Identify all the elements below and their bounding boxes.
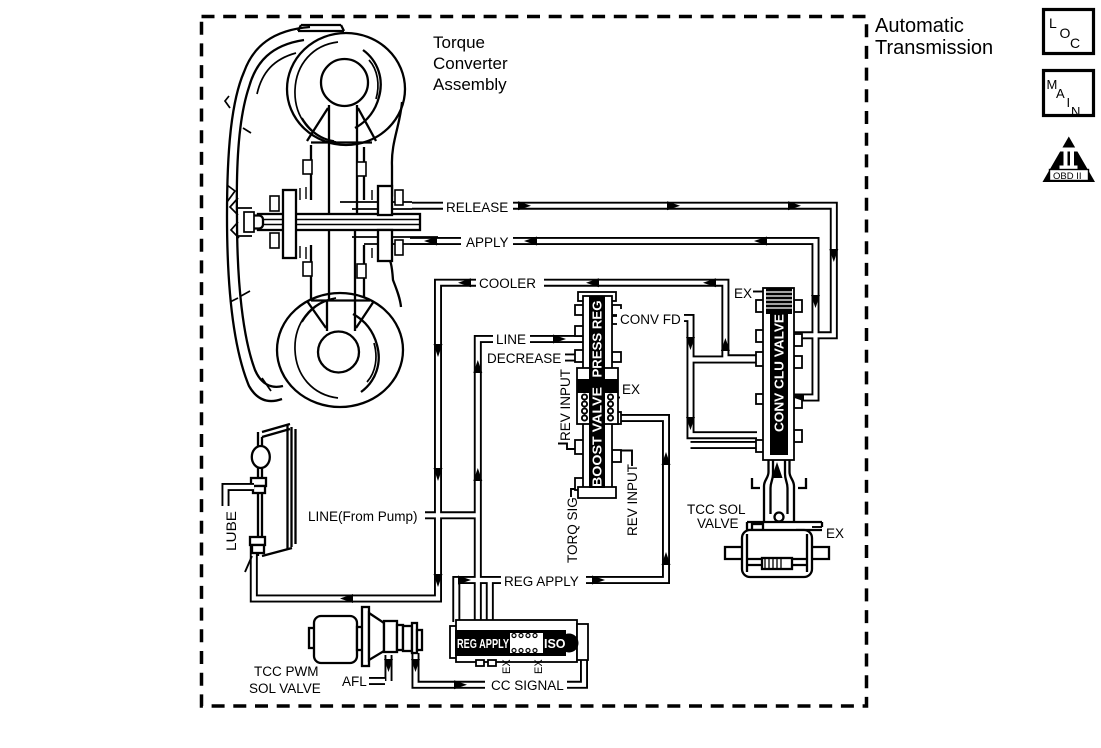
svg-text:ISO: ISO	[544, 637, 566, 651]
svg-text:DECREASE: DECREASE	[487, 351, 561, 366]
svg-text:REV INPUT: REV INPUT	[558, 369, 573, 441]
svg-text:C: C	[1070, 35, 1080, 51]
svg-text:PRESS REG: PRESS REG	[591, 301, 605, 378]
svg-text:Torque: Torque	[433, 33, 485, 52]
svg-text:O: O	[1060, 25, 1071, 41]
svg-text:OBD II: OBD II	[1053, 171, 1082, 182]
svg-text:EX: EX	[501, 659, 513, 674]
svg-text:EX: EX	[826, 526, 844, 541]
svg-text:REG APPLY: REG APPLY	[504, 574, 579, 589]
svg-text:TORQ SIG: TORQ SIG	[565, 497, 580, 563]
svg-text:Converter: Converter	[433, 54, 508, 73]
svg-text:Transmission: Transmission	[875, 37, 993, 59]
svg-text:EX: EX	[533, 659, 545, 674]
svg-text:N: N	[1071, 104, 1080, 119]
svg-text:EX: EX	[734, 286, 752, 301]
svg-text:APPLY: APPLY	[466, 235, 509, 250]
svg-text:LINE: LINE	[496, 332, 526, 347]
svg-text:RELEASE: RELEASE	[446, 200, 508, 215]
svg-text:AFL: AFL	[342, 674, 367, 689]
svg-text:EX: EX	[622, 382, 640, 397]
svg-text:COOLER: COOLER	[479, 276, 536, 291]
svg-text:LINE(From Pump): LINE(From Pump)	[308, 509, 418, 524]
svg-text:Assembly: Assembly	[433, 75, 507, 94]
svg-text:REV INPUT: REV INPUT	[625, 464, 640, 536]
svg-text:CONV FD: CONV FD	[620, 312, 681, 327]
svg-text:BOOST VALVE: BOOST VALVE	[591, 387, 605, 487]
svg-text:I: I	[1067, 95, 1071, 110]
svg-text:LUBE: LUBE	[224, 511, 239, 551]
svg-text:Automatic: Automatic	[875, 15, 964, 37]
svg-text:A: A	[1056, 86, 1065, 101]
svg-text:CC SIGNAL: CC SIGNAL	[491, 678, 564, 693]
svg-text:SOL VALVE: SOL VALVE	[249, 681, 321, 696]
svg-text:CONV CLU VALVE: CONV CLU VALVE	[773, 314, 787, 432]
svg-text:L: L	[1049, 15, 1057, 31]
svg-text:VALVE: VALVE	[697, 516, 739, 531]
svg-text:REG APPLY: REG APPLY	[457, 637, 509, 651]
svg-text:TCC SOL: TCC SOL	[687, 502, 746, 517]
svg-text:TCC PWM: TCC PWM	[254, 664, 319, 679]
